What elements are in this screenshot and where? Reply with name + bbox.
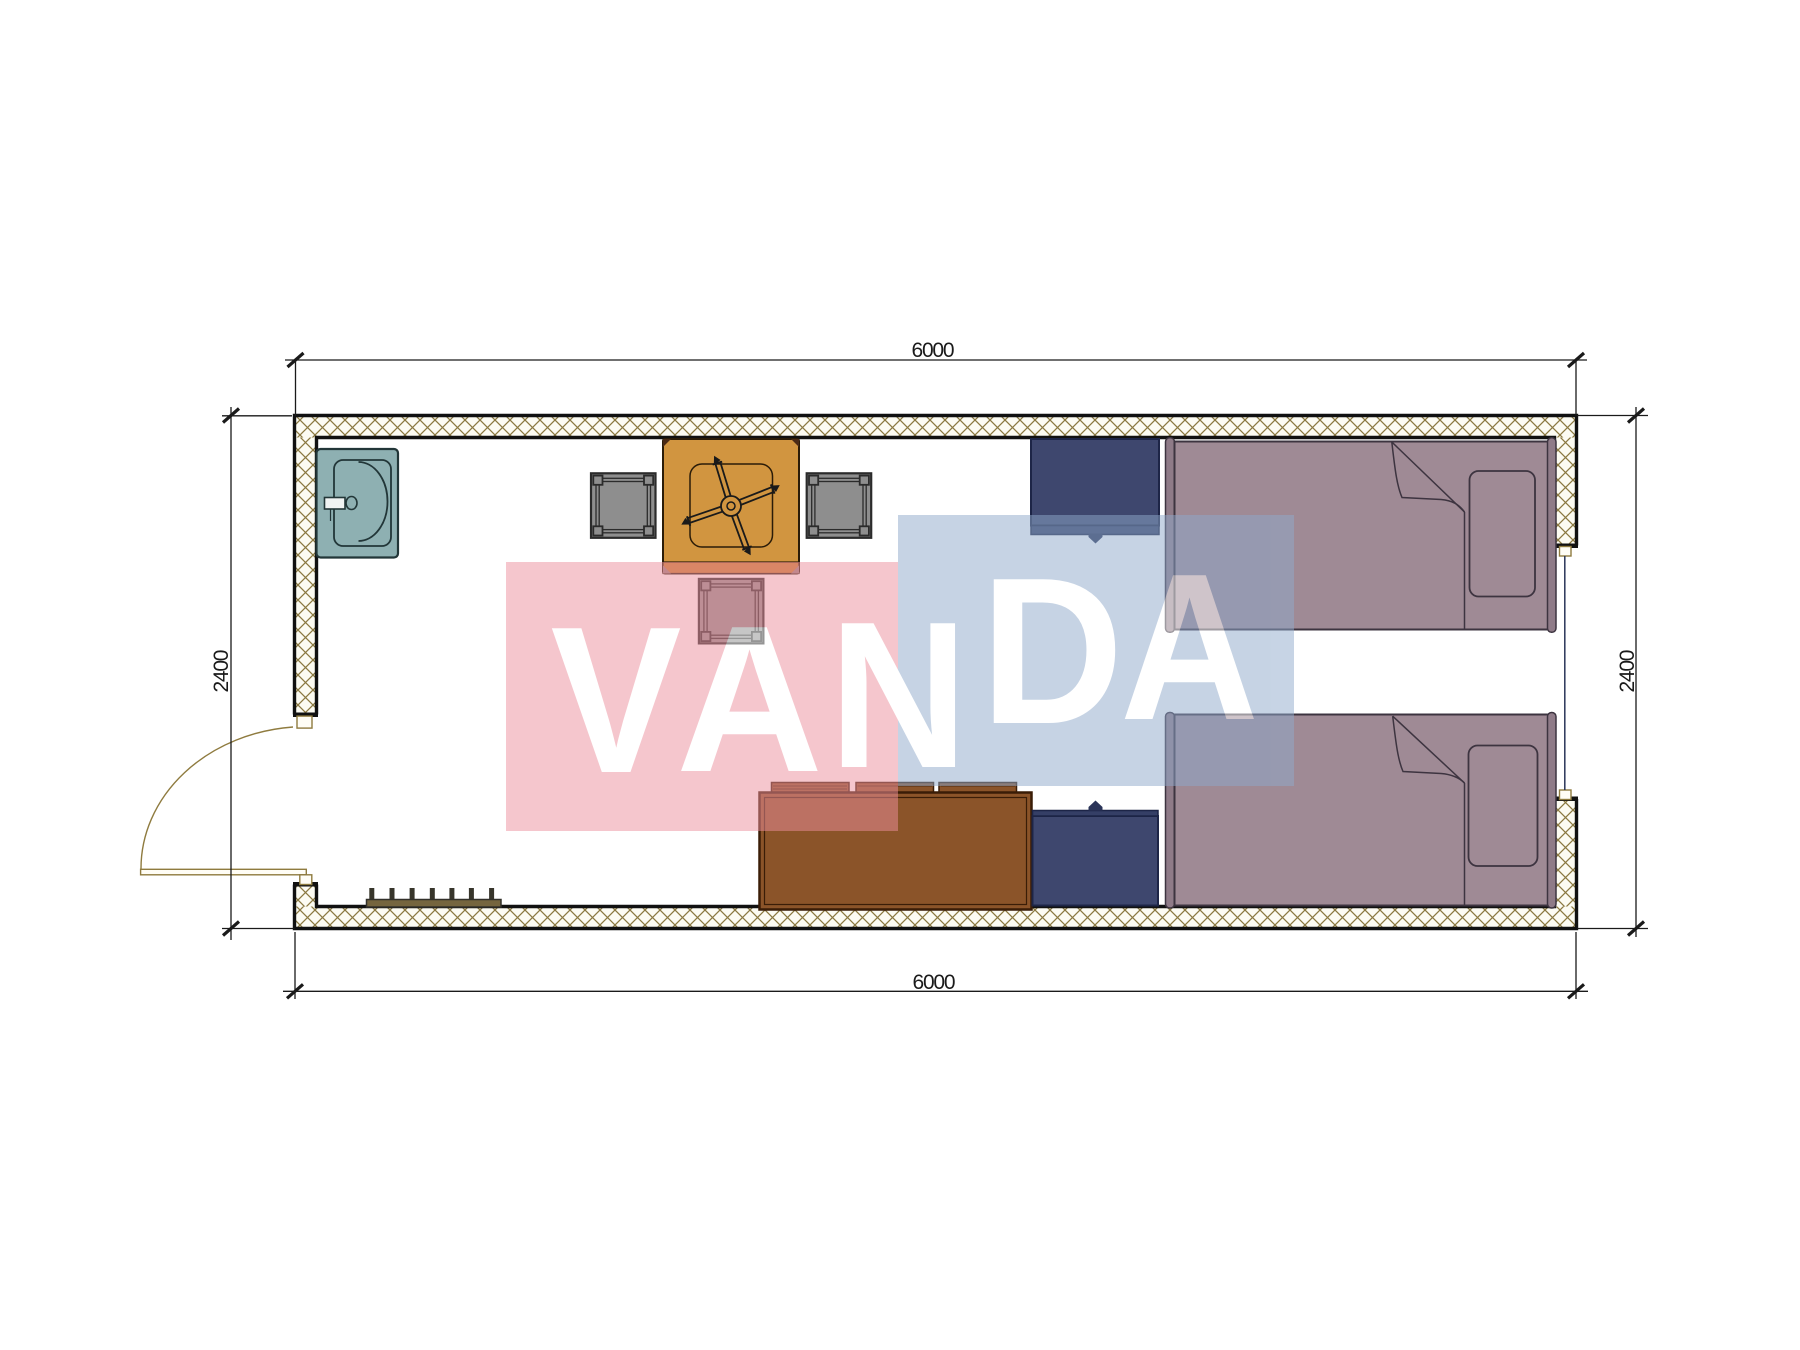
svg-text:A: A [676,583,823,816]
svg-text:D: D [981,535,1124,768]
svg-text:V: V [551,584,682,817]
svg-text:6000: 6000 [913,971,956,994]
svg-text:2400: 2400 [1616,650,1639,693]
svg-text:6000: 6000 [912,339,955,362]
svg-text:2400: 2400 [210,650,233,693]
svg-text:N: N [829,579,968,812]
svg-text:A: A [1120,531,1259,764]
